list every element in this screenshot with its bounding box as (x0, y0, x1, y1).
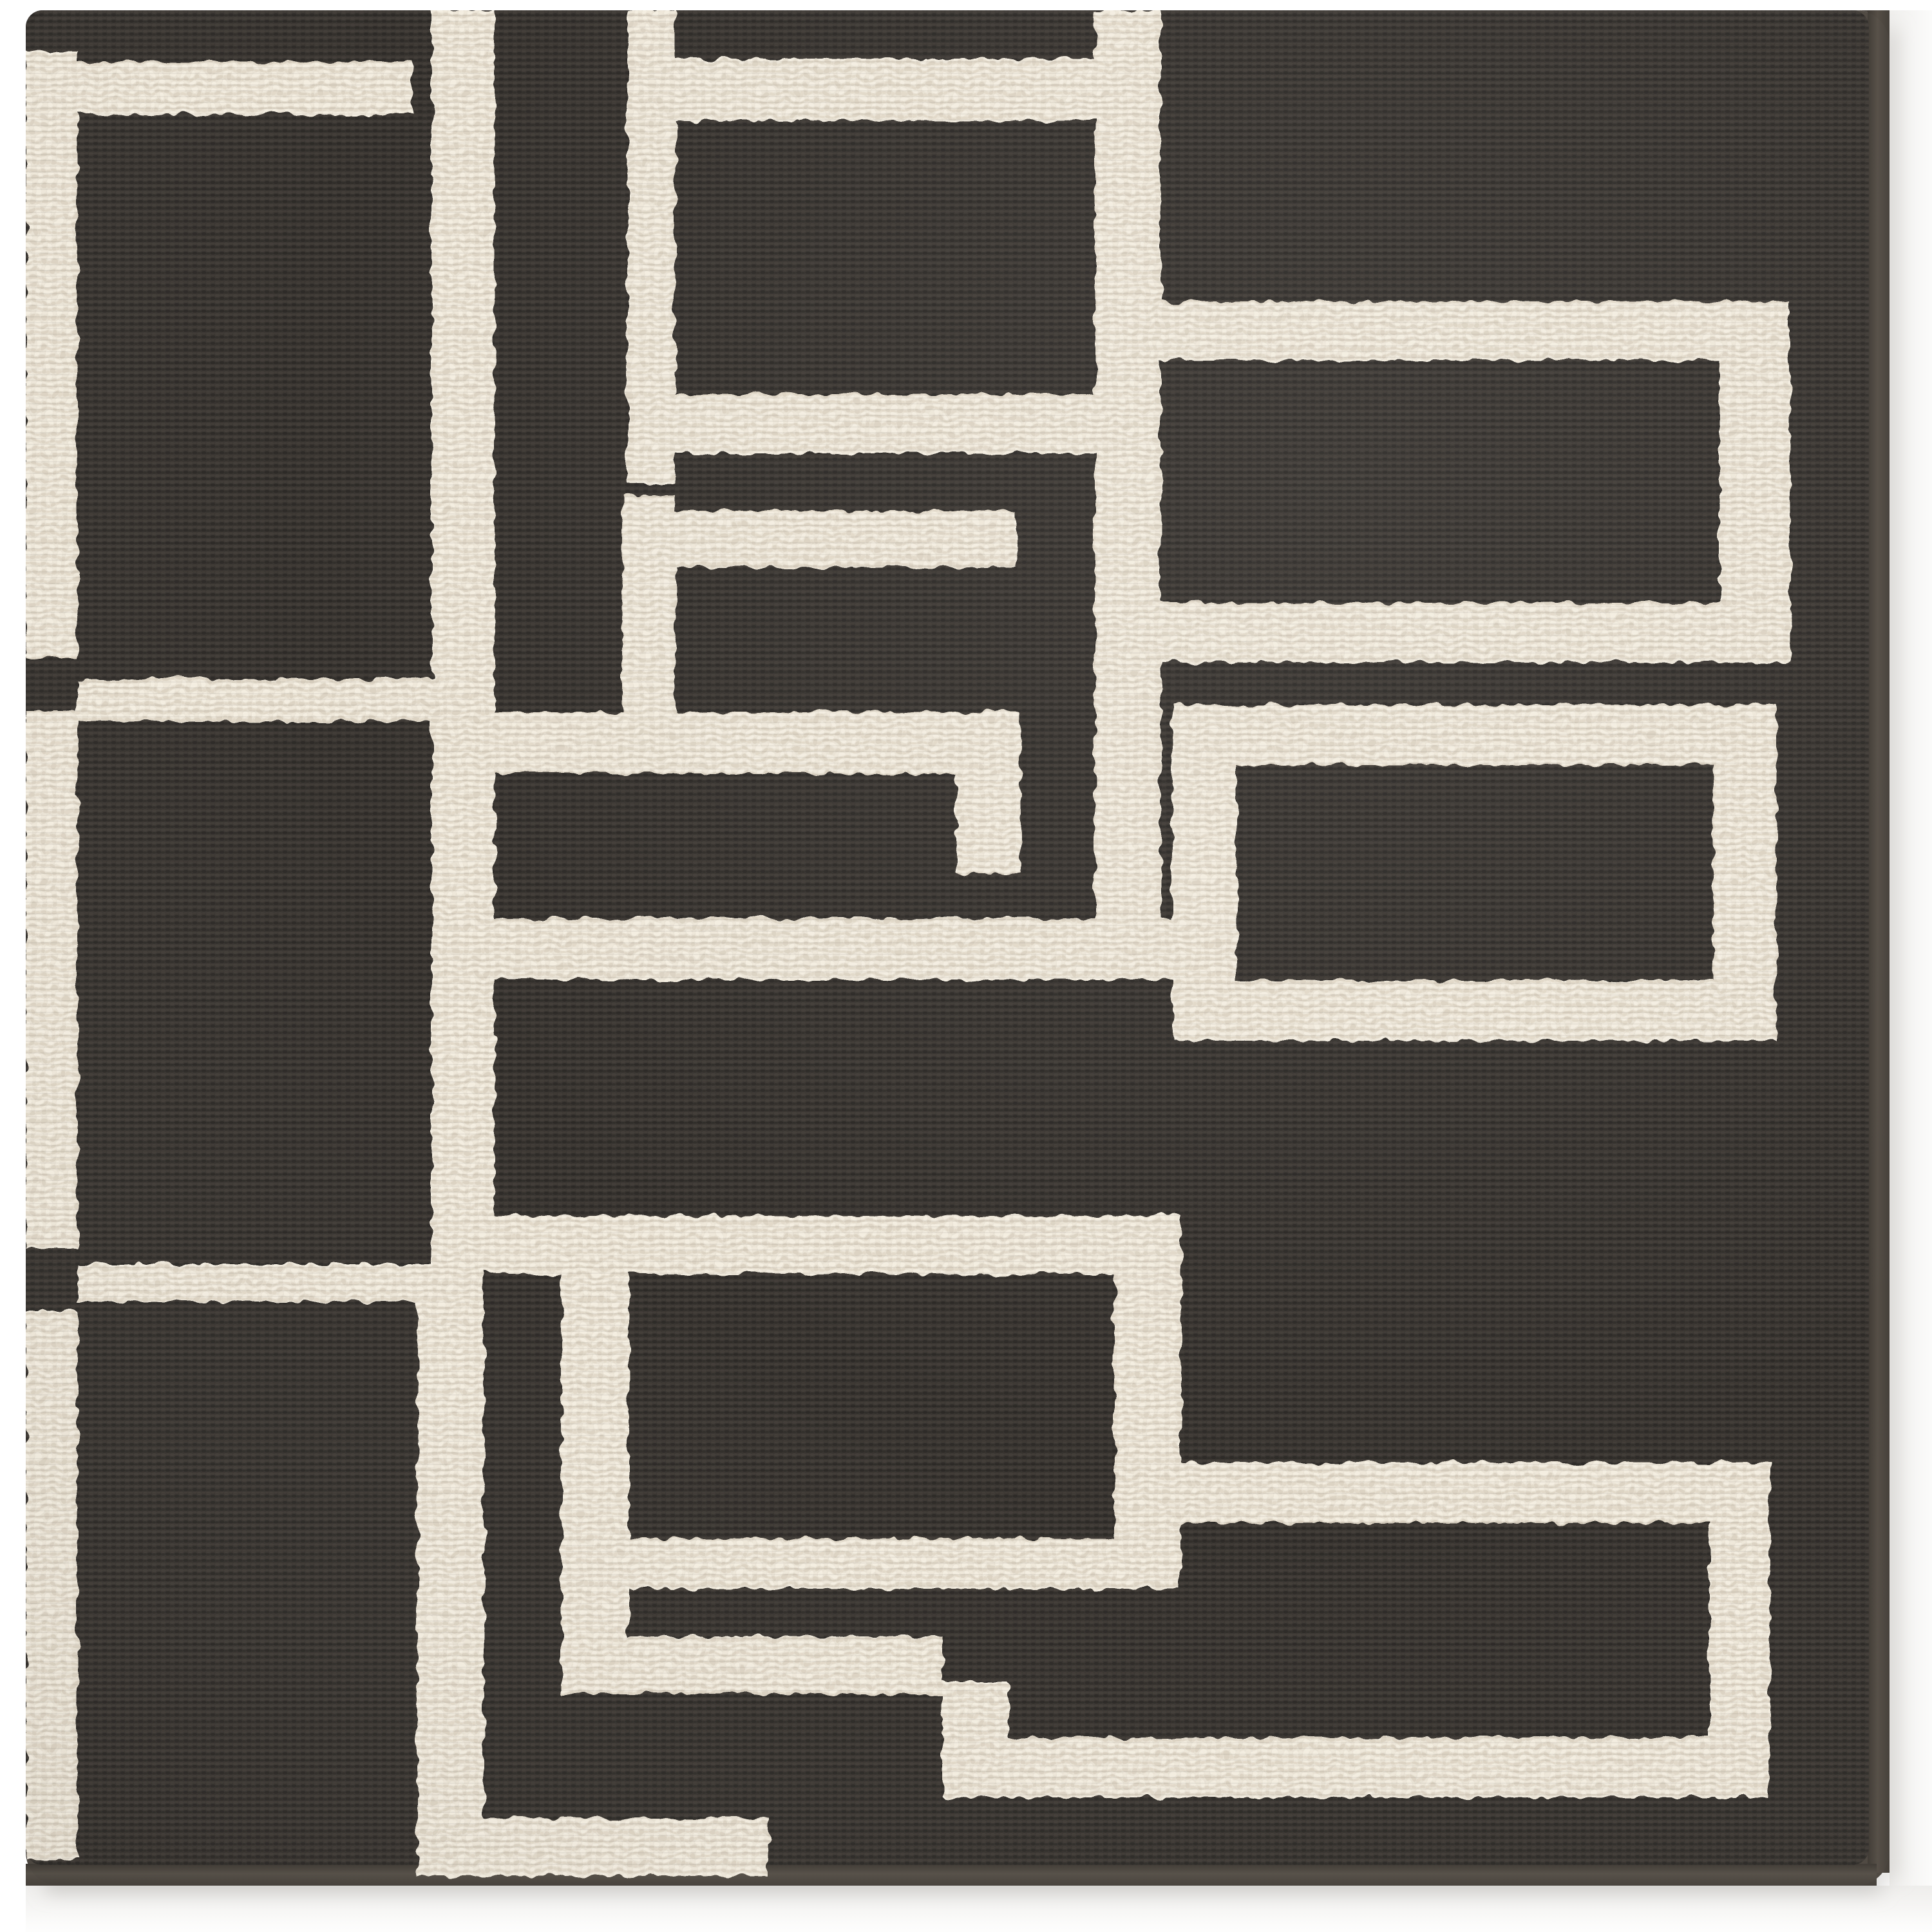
lighting-sheen (26, 10, 1889, 1886)
backdrop-bottom-shading (26, 1886, 1932, 1932)
rug-product-photo (26, 10, 1932, 1932)
photo-lighting-overlay (26, 10, 1889, 1886)
rug-photo-canvas (26, 10, 1932, 1932)
